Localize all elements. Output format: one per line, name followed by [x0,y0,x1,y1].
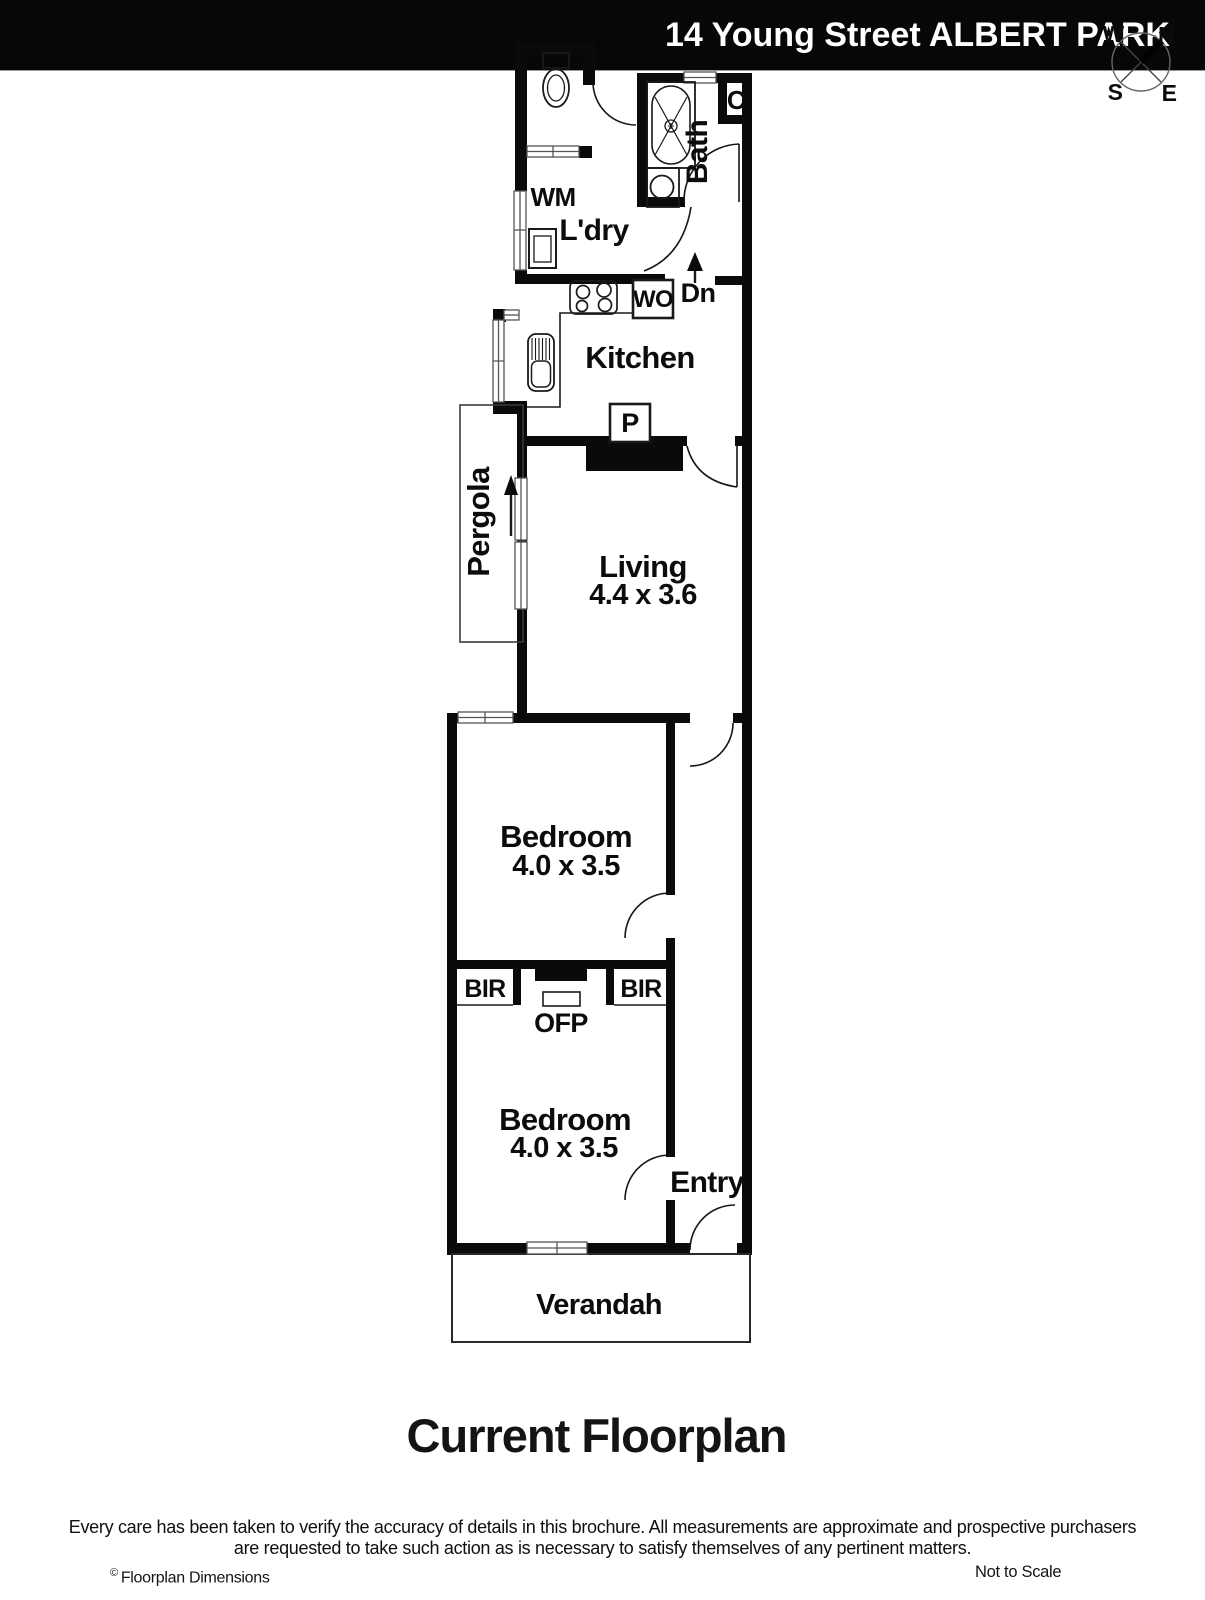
window [515,542,527,609]
label-bedroom-mid: Bedroom [500,819,632,854]
window [493,320,504,402]
living-fireplace [586,443,683,471]
laundry-trough-icon [529,229,556,268]
wall-segment [447,713,457,965]
robe-partition [606,969,614,1005]
sink-icon [528,334,554,391]
label-pantry: P [621,408,639,438]
copyright-note: ©Floorplan Dimensions [110,1567,270,1587]
floorplan-title: Current Floorplan [0,1408,1193,1463]
compass-south-label: S [1108,79,1123,105]
window [527,146,579,157]
ofp-firebox [535,969,587,981]
label-kitchen: Kitchen [585,340,694,375]
door-arc-laundry-hall [644,207,691,271]
compass-rose: W N S E [1102,21,1176,106]
wall-segment [735,436,752,446]
robe-partition [513,969,521,1005]
wall-segment [733,713,752,723]
label-down: Dn [681,278,716,308]
wall-segment [513,713,690,723]
wall-segment [515,43,527,146]
wall-segment [666,969,675,1157]
label-verandah: Verandah [536,1289,662,1321]
label-bedroom-front-dim: 4.0 x 3.5 [510,1132,618,1164]
label-laundry: L'dry [559,214,629,247]
compass-west-label: W [1102,21,1124,47]
copyright-symbol: © [110,1567,118,1579]
label-ofp: OFP [534,1008,588,1038]
window [515,478,527,540]
disclaimer-line-1: Every care has been taken to verify the … [0,1517,1205,1538]
window [458,712,513,723]
cooktop-icon [570,281,617,314]
label-wall-oven: WO [633,286,673,313]
label-wm: WM [531,182,576,212]
label-bir-right: BIR [620,975,662,1003]
floorplan-canvas: W N S E [0,0,1205,1530]
wall-segment [583,43,595,85]
label-pergola: Pergola [461,466,496,577]
door-arc-bedroom-front [625,1155,670,1200]
wall-segment [447,960,457,1253]
wall-segment [515,158,527,191]
floorplan-page: 14 Young Street ALBERT PARK W N S E [0,0,1205,1600]
door-arc-living [687,446,737,487]
label-entry: Entry [670,1166,745,1199]
compass-east-label: E [1162,80,1177,106]
copyright-text: Floorplan Dimensions [121,1569,270,1586]
disclaimer-line-2: are requested to take such action as is … [0,1538,1205,1559]
disclaimer: Every care has been taken to verify the … [0,1517,1205,1559]
wall-segment [515,146,527,158]
label-bedroom-mid-dim: 4.0 x 3.5 [512,850,620,882]
window [514,191,526,270]
door-arc-wc [593,83,636,125]
label-bath: Bath [681,120,714,184]
wall-segment [742,73,752,1255]
ofp-hearth [543,992,580,1006]
wall-segment [579,146,592,158]
window [504,310,519,320]
scale-note: Not to Scale [975,1563,1061,1582]
door-arc-bedroom-mid [625,893,670,938]
compass-north-label: N [1158,22,1174,48]
label-closet: C [727,85,746,115]
room-labels: WM L'dry Bath C WO Dn Kitchen P Pergola … [461,85,746,1321]
wall-segment [666,723,675,895]
label-living-dim: 4.4 x 3.6 [589,579,697,611]
toilet-icon [543,53,569,107]
wall-segment [447,960,675,969]
window [527,1242,587,1254]
door-arc-entry [690,1205,735,1250]
door-arc-hall [690,723,733,766]
windows [458,72,716,1254]
label-bir-left: BIR [464,975,506,1003]
